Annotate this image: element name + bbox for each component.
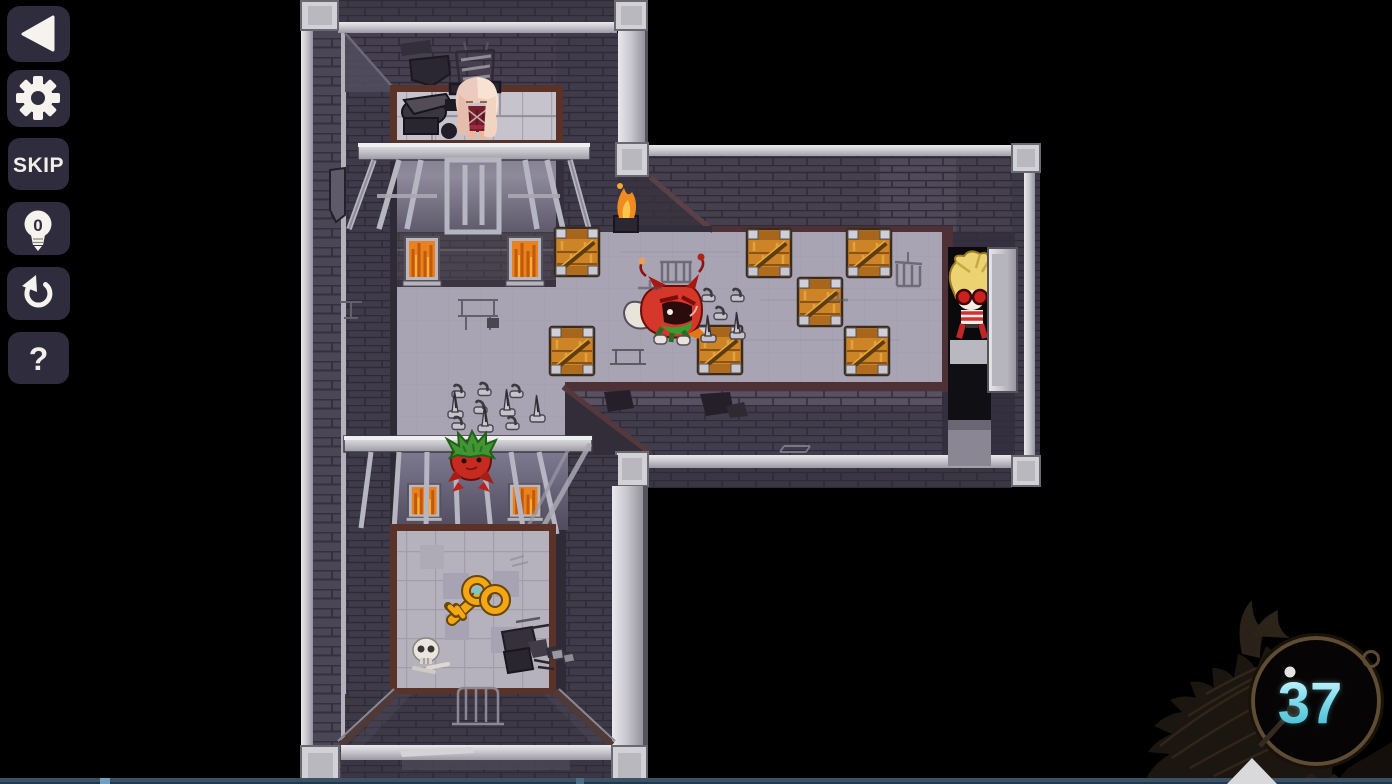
svg-text:?: ?	[29, 341, 49, 377]
svg-text:0: 0	[33, 216, 42, 235]
svg-text:SKIP: SKIP	[13, 154, 64, 177]
svg-text:37: 37	[1278, 671, 1343, 736]
